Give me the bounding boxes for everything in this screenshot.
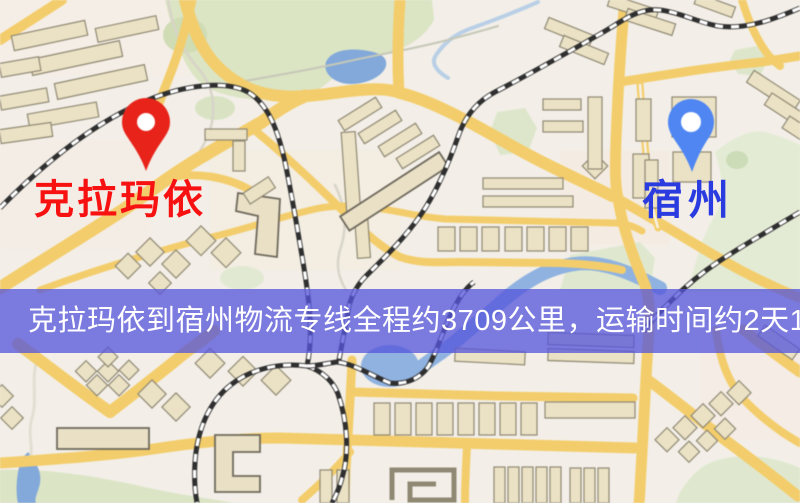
info-banner: 克拉玛依到宿州物流专线全程约3709公里，运输时间约2天13小时. bbox=[0, 289, 800, 353]
map-canvas[interactable]: 克拉玛依 宿州 克拉玛依到宿州物流专线全程约3709公里，运输时间约2天13小时… bbox=[0, 0, 800, 503]
origin-label: 克拉玛依 bbox=[34, 180, 206, 220]
map-graphics bbox=[0, 0, 800, 503]
destination-label: 宿州 bbox=[642, 180, 734, 221]
info-banner-text: 克拉玛依到宿州物流专线全程约3709公里，运输时间约2天13小时. bbox=[28, 305, 800, 337]
